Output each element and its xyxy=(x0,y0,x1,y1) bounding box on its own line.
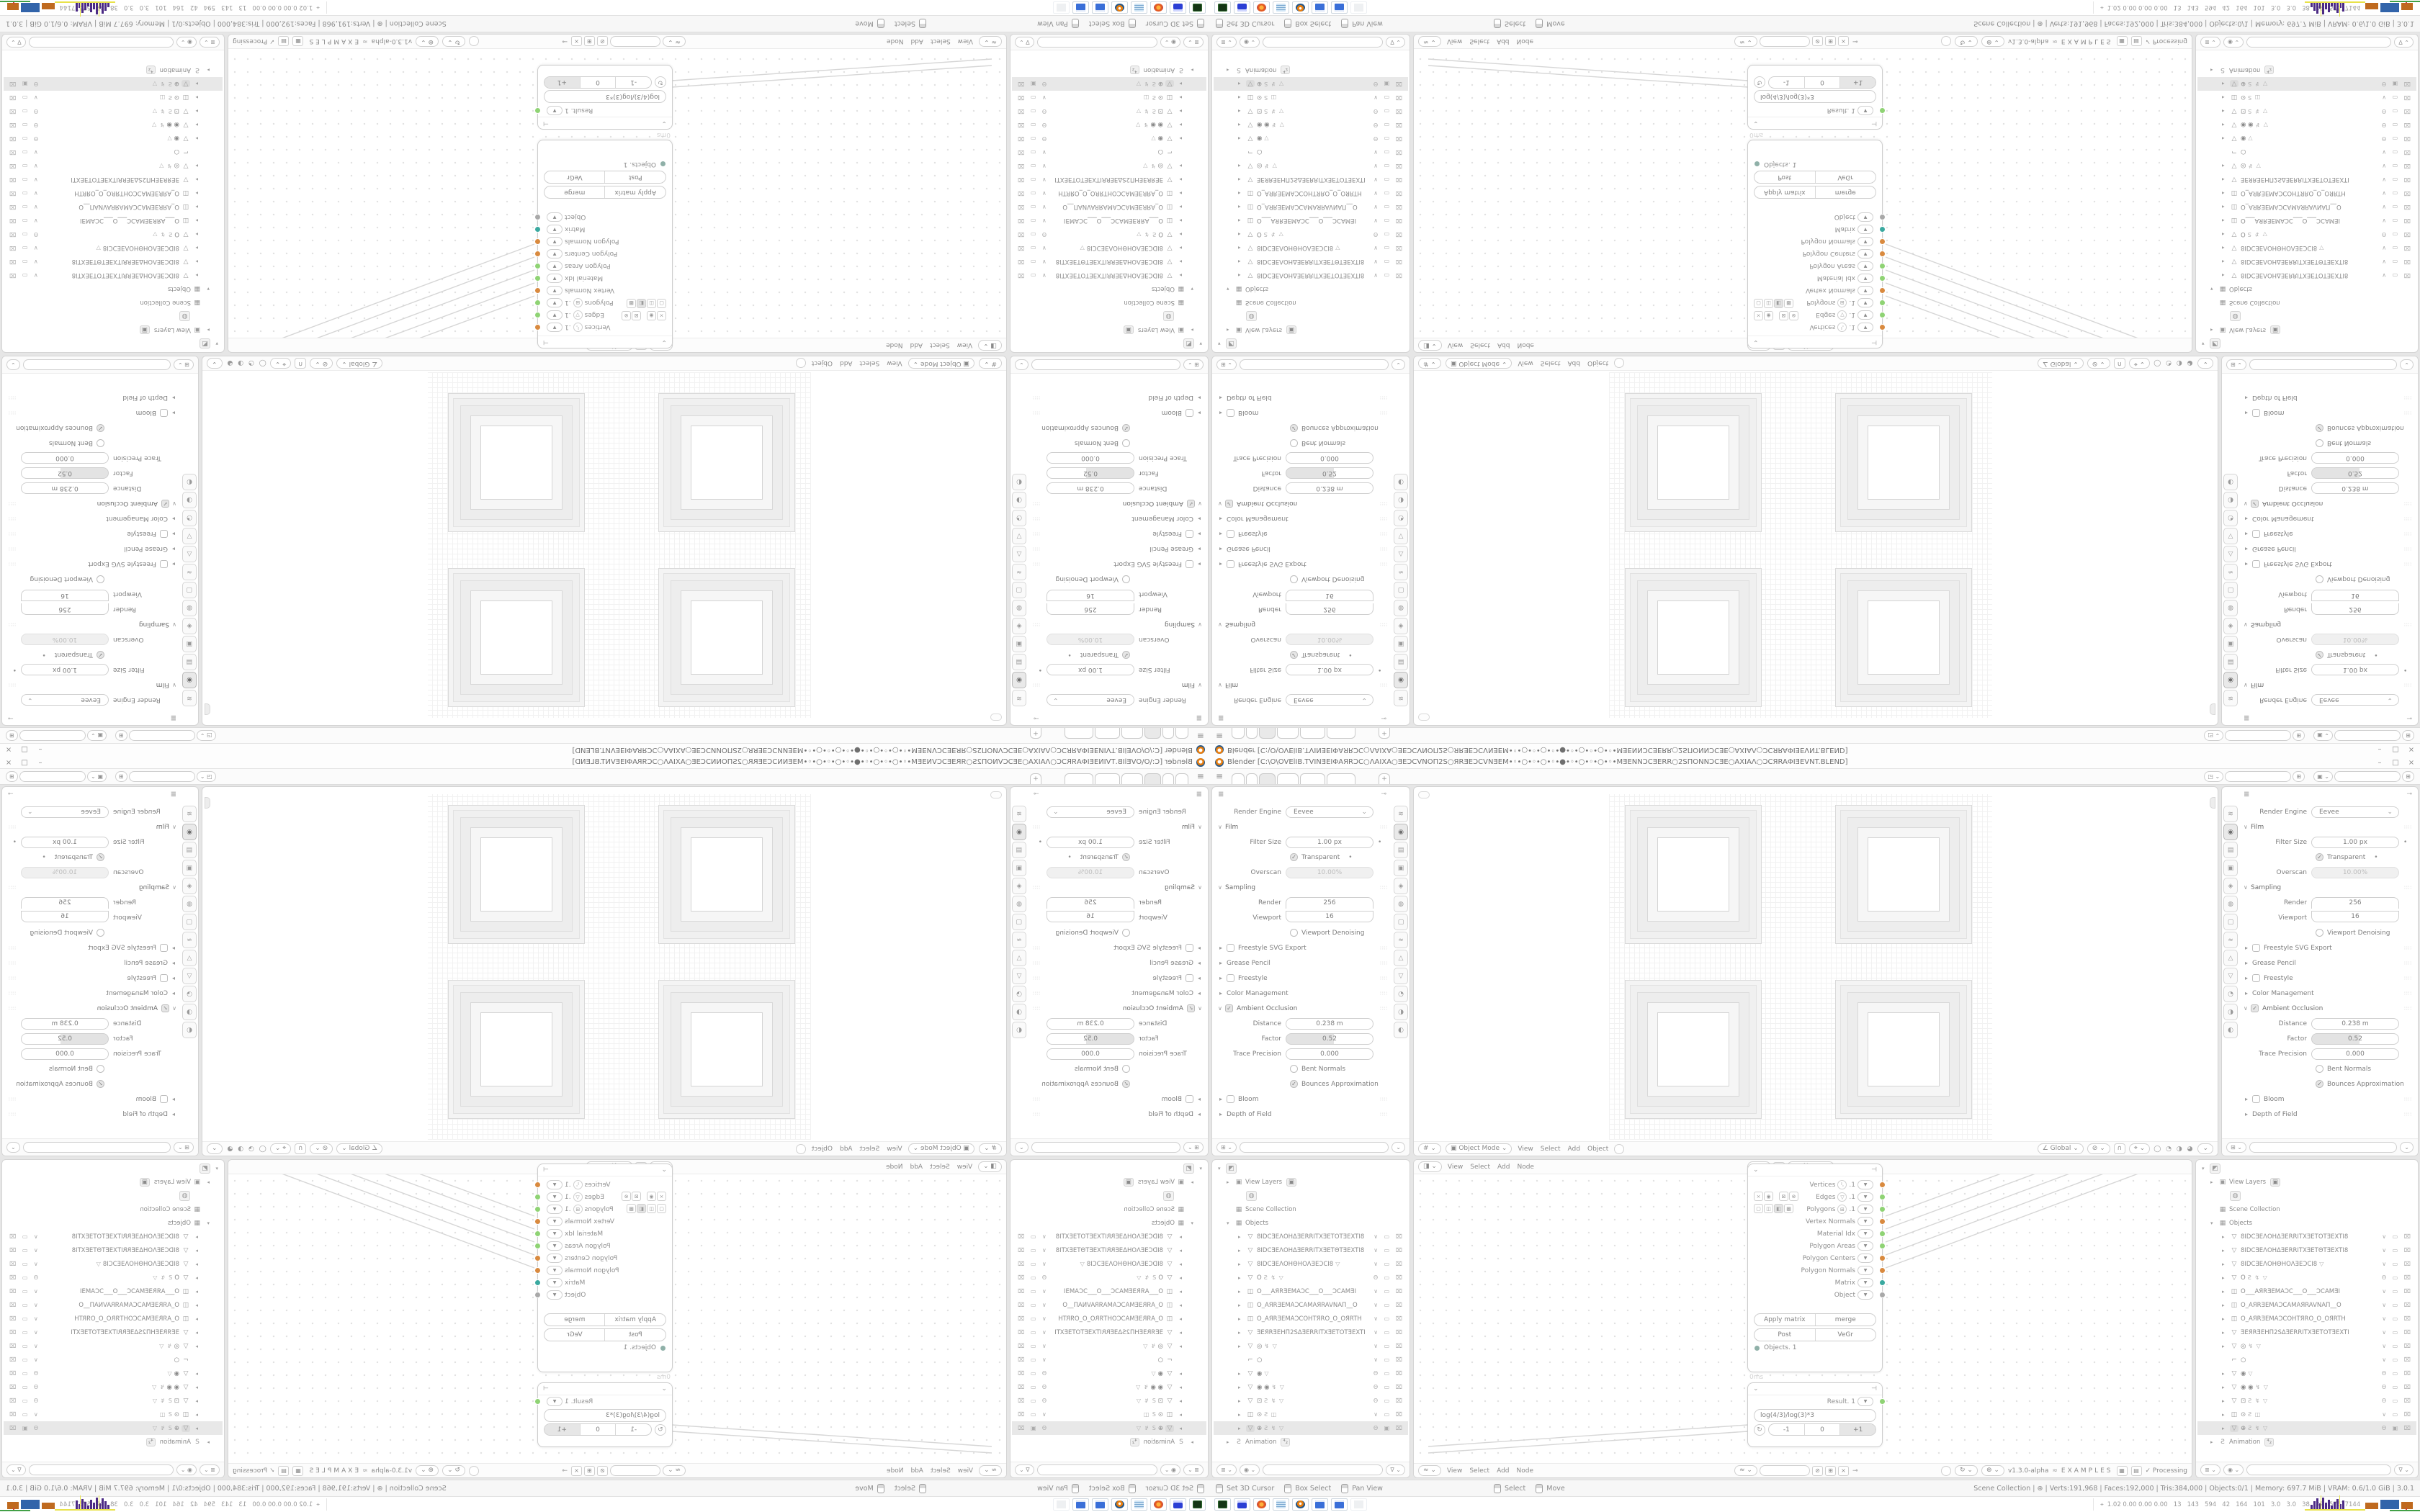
outliner-visibility-toggles[interactable]: Θ ▭ ⌧ xyxy=(1373,1384,1408,1390)
node-header-item[interactable]: ≈ ⌄ xyxy=(1418,1465,1441,1476)
node-tree-item[interactable]: ⊸ xyxy=(561,38,570,45)
outliner-item-name[interactable]: ○ xyxy=(174,149,179,156)
property-value[interactable]: 0.238 m xyxy=(1286,1018,1373,1030)
section-caret-icon[interactable]: ∨ xyxy=(2244,884,2251,891)
expand-caret-icon[interactable]: ▸ xyxy=(1176,1316,1182,1322)
outliner-row[interactable]: ▸ ◫ O___AЯRƎEMAƆC___O___ƆCAMƎI ∨ ▭ ⌧ xyxy=(2197,1284,2416,1298)
close-button[interactable]: × xyxy=(4,759,13,767)
outliner-row[interactable]: ▸ ▽ 8IDCƎEΛOHΔƎERRITXƎETOTƎEXTI8 ∨ ▭ ⌧ xyxy=(1214,1230,1408,1243)
property-row[interactable]: ∨ Ambient Occlusion ∷∷ xyxy=(2244,1001,2412,1016)
viewport-header-item[interactable]: ▣ Object Mode ⌄ xyxy=(1446,1143,1512,1154)
socket-dot[interactable] xyxy=(1879,1194,1886,1200)
property-value[interactable]: 256 xyxy=(2311,604,2399,616)
node-toggle-icon[interactable]: ◉ xyxy=(647,1192,656,1201)
node-header-item[interactable]: Add xyxy=(909,1467,924,1475)
properties-tab-icon[interactable]: ▽ xyxy=(1012,528,1026,544)
expand-caret-icon[interactable]: ▸ xyxy=(192,1261,198,1267)
outliner-visibility-toggles[interactable]: Θ ▭ ⌧ xyxy=(1373,122,1408,128)
expand-caret-icon[interactable]: ▸ xyxy=(2210,1439,2216,1445)
outliner-item-name[interactable]: ⊙ xyxy=(2241,94,2246,102)
section-caret-icon[interactable]: ∨ xyxy=(169,621,176,628)
sverchok-header-item[interactable]: ✓ Processing xyxy=(233,1467,274,1475)
outliner-item-name[interactable]: Scene Collection xyxy=(140,1206,191,1213)
node-output-socket[interactable]: Polygon Areas ▼ xyxy=(538,260,672,272)
property-row[interactable]: Distance 0.238 m xyxy=(1032,481,1202,496)
window-title-bar[interactable]: Blender [C:\O\OVElIB.TVINƎEIΦAЯRƆC○ΛAIXA… xyxy=(0,756,1210,769)
expand-caret-icon[interactable]: ▸ xyxy=(192,122,198,128)
section-caret-icon[interactable]: ▸ xyxy=(2245,1111,2252,1117)
outliner-row[interactable]: ▸ ◫ O_AЯRƎEMAƆCAMAЯRAVNAΠ__O ∨ ▭ ⌧ xyxy=(2197,1298,2416,1312)
node-header-item[interactable]: Select xyxy=(1468,1467,1491,1475)
property-row[interactable]: Viewport 16 xyxy=(1032,587,1202,602)
sverchok-header-item[interactable] xyxy=(1941,1466,1951,1476)
outliner-row[interactable]: ▸ ◫ ⊙ Ƨ ◫ ∨ ▭ ⌧ xyxy=(2197,91,2416,104)
view-layer-selector[interactable]: ▣ ⌄ ⊞ xyxy=(2313,771,2414,782)
viewport-header-item[interactable]: View xyxy=(1516,360,1534,367)
outliner-row[interactable]: ▸ ▽ ◉ ◉ ↯ ▽ Θ ▭ ⌧ xyxy=(4,1380,223,1394)
step-button[interactable]: -1 xyxy=(1769,1424,1804,1435)
socket-dropdown[interactable]: ▼ xyxy=(547,274,563,283)
outliner-row[interactable]: ▸ ▽ ⊡ Ƨ ↯ ▽ Θ ▭ ⌧ xyxy=(1214,104,1408,118)
node-header[interactable]: ⌄ ⊣ xyxy=(1748,1383,1882,1395)
node-header-item[interactable]: Node xyxy=(885,1467,905,1475)
node-output-socket[interactable]: Vertex Normals ▼ xyxy=(1748,284,1882,297)
node-header-item[interactable]: Select xyxy=(1469,342,1492,349)
property-value[interactable]: 1.00 px xyxy=(21,665,109,676)
section-caret-icon[interactable]: ▸ xyxy=(1193,395,1201,401)
socket-dropdown[interactable]: ▼ xyxy=(547,1180,563,1189)
sverchok-node-editor[interactable]: ◨ ⌄ViewSelectAddNode ◨ ⌄1New⊸ xyxy=(1413,34,2192,353)
property-value[interactable]: 0.52 xyxy=(21,468,109,480)
node-output-socket[interactable]: Object ▼ xyxy=(1748,211,1882,223)
outliner-row[interactable]: ◍ xyxy=(1214,310,1408,323)
property-row[interactable]: Viewport 16 xyxy=(8,910,176,925)
section-caret-icon[interactable]: ∨ xyxy=(1195,682,1202,688)
outliner-visibility-toggles[interactable]: ∨ ▭ ⌧ xyxy=(1373,176,1408,183)
checkbox[interactable] xyxy=(1290,439,1298,447)
outliner-row[interactable]: ▸ ▽ 8IDCƎEΛOHΔƎERRITXƎETΘTƎEXTI8 ∨ ▭ ⌧ xyxy=(4,255,223,269)
sverchok-header-item[interactable]: EXAMPLES xyxy=(307,38,359,45)
outliner-item-name[interactable]: ƎEЯRƎEHΠ2SΔƎERRITXƎETOTƎEXTI xyxy=(1257,176,1365,184)
node-toggle-icon[interactable]: ⊗ xyxy=(622,1192,631,1201)
display-mode-icon[interactable]: ◫ xyxy=(647,1204,656,1213)
property-row[interactable]: Overscan 10.00% xyxy=(1032,865,1202,880)
outliner-visibility-toggles[interactable]: ∨ ▭ ⌧ xyxy=(1373,1233,1408,1240)
expand-caret-icon[interactable]: ▸ xyxy=(204,68,210,73)
socket-dot[interactable] xyxy=(534,1292,541,1298)
step-button[interactable]: +1 xyxy=(544,77,581,88)
expand-caret-icon[interactable]: ▸ xyxy=(192,1398,198,1404)
outliner-row[interactable]: ▸ ◫ ⊙ Ƨ ◫ ∨ ▭ ⌧ xyxy=(4,91,223,104)
pin-icon[interactable]: ⊸ xyxy=(1034,791,1039,798)
step-button[interactable]: -1 xyxy=(616,77,651,88)
outliner-row[interactable]: ▸ ▽ 8IDCƎEΛOHΘHOΛƎEƆCI8 ▽ ∨ ▭ ⌧ xyxy=(4,1257,223,1271)
expand-caret-icon[interactable]: ▸ xyxy=(1176,1426,1182,1431)
outliner-visibility-toggles[interactable]: Θ ▭ ⌧ xyxy=(2382,231,2416,238)
viewport-header-item[interactable]: ∠ Global ⌄ xyxy=(2038,358,2084,369)
expand-caret-icon[interactable]: ▸ xyxy=(2222,81,2228,87)
section-caret-icon[interactable]: ▸ xyxy=(168,546,175,552)
outliner-visibility-toggles[interactable]: ∨ ▭ ⌧ xyxy=(2382,1261,2416,1267)
outliner-visibility-toggles[interactable]: ∨ ▭ ⌧ xyxy=(4,149,38,156)
node-button[interactable]: VeGr xyxy=(544,171,606,183)
properties-options-icon[interactable]: ⌄ xyxy=(1391,1142,1405,1153)
expand-caret-icon[interactable]: ▸ xyxy=(2222,1234,2228,1240)
node-header-item[interactable]: Select xyxy=(929,1467,952,1475)
scene-selector[interactable]: ◳ ⌄ ⊞ xyxy=(115,730,216,741)
section-caret-icon[interactable]: ▸ xyxy=(1193,990,1201,996)
outliner-row[interactable]: ▸ ▽ ⊡ Ƨ ↯ ▽ Θ ▭ ⌧ xyxy=(4,1394,223,1408)
property-row[interactable]: Render 256 xyxy=(2244,895,2412,910)
section-caret-icon[interactable]: ▸ xyxy=(1219,516,1227,522)
outliner-item-name[interactable]: View Layers xyxy=(154,1179,191,1186)
viewport-header-item[interactable]: Object xyxy=(810,1146,834,1153)
expand-caret-icon[interactable]: ▸ xyxy=(1176,246,1182,251)
property-row[interactable]: Bounces Approximation xyxy=(1218,1076,1388,1092)
outliner-item-name[interactable]: ◎ xyxy=(1257,1343,1262,1350)
view-layer-selector[interactable]: ▣ ⌄ ⊞ xyxy=(6,771,107,782)
node-output-socket[interactable]: Result. 1 ▼ xyxy=(1748,1395,1882,1408)
property-row[interactable]: Overscan 10.00% xyxy=(1218,632,1388,647)
properties-tab-icon[interactable]: ≋ xyxy=(1012,806,1026,822)
outliner-item-name[interactable]: O_AЯRƎEMAƆCAMAЯRAVNAΠ__O xyxy=(1062,204,1163,211)
properties-editor-icon[interactable]: ≣ xyxy=(2244,791,2249,798)
property-row[interactable]: ▸ Depth of Field ∷∷ xyxy=(1218,390,1388,405)
outliner-row[interactable]: ▸ Ƨ Animation ⁴₂ xyxy=(1012,63,1206,77)
property-row[interactable]: ∨ Film ∷∷ xyxy=(1218,678,1388,693)
outliner-row[interactable]: ◍ xyxy=(1012,1189,1206,1202)
node-input-socket[interactable]: Objects. 1 xyxy=(1748,161,1882,171)
property-row[interactable]: Viewport 16 xyxy=(1218,910,1388,925)
outliner-item-name[interactable]: O___AЯRƎEMAƆC___O___ƆCAMƎI xyxy=(80,217,179,225)
property-row[interactable]: ▸ Grease Pencil ∷∷ xyxy=(1032,541,1202,557)
node-header-item[interactable]: Add xyxy=(1495,1467,1510,1475)
properties-search-input[interactable] xyxy=(2249,1142,2397,1153)
outliner-row[interactable]: ▾ ◩ xyxy=(1214,1161,1408,1175)
property-row[interactable]: Overscan 10.00% xyxy=(8,632,176,647)
property-row[interactable]: ▸ Depth of Field ∷∷ xyxy=(1032,390,1202,405)
properties-tab-icon[interactable]: ◉ xyxy=(1012,672,1026,688)
outliner-item-name[interactable]: O_AЯRƎEMAƆCOHTЯRO_O_OЯRTH xyxy=(1058,190,1163,197)
outliner-mode-dropdown[interactable]: ≣ ⌄ xyxy=(2200,37,2220,48)
property-row[interactable]: ▸ Freestyle SVG Export ∷∷ xyxy=(1032,557,1202,572)
property-row[interactable]: Filter Size 1.00 px • xyxy=(2244,834,2412,850)
property-row[interactable]: ▸ Grease Pencil ∷∷ xyxy=(1218,955,1388,971)
sverchok-header-item[interactable]: v1.3.0-alpha xyxy=(2008,1467,2048,1475)
node-button[interactable]: Post xyxy=(1754,1329,1815,1341)
outliner-filter-icon[interactable]: ∇ ⌄ xyxy=(1386,37,1405,48)
notepad-app-icon[interactable] xyxy=(1273,1,1289,14)
outliner-item-name[interactable]: O_AЯRƎEMAƆCOHTЯRO_O_OЯRTH xyxy=(1257,1315,1362,1323)
sverchok-header-item[interactable]: ▦ xyxy=(2117,37,2128,47)
node-tree-item[interactable] xyxy=(610,1465,660,1476)
menu-hamburger-icon[interactable]: ≡ xyxy=(1216,771,1223,781)
outliner-visibility-toggles[interactable]: ∨ ▭ ⌧ xyxy=(2382,1343,2416,1349)
socket-dropdown[interactable]: ▼ xyxy=(1857,212,1873,222)
expand-caret-icon[interactable]: ▸ xyxy=(1176,109,1182,114)
outliner-item-name[interactable]: View Layers xyxy=(1245,327,1282,334)
property-row[interactable]: ∨ Film ∷∷ xyxy=(2244,678,2412,693)
property-row[interactable]: Distance 0.238 m xyxy=(8,481,176,496)
section-caret-icon[interactable]: ▸ xyxy=(1219,561,1227,567)
section-caret-icon[interactable]: ∨ xyxy=(2244,682,2251,688)
outliner-item-name[interactable]: Animation xyxy=(1245,67,1276,74)
viewport-header-item[interactable]: ⊘ ⌄ xyxy=(2087,1143,2110,1154)
property-row[interactable]: ∨ Film ∷∷ xyxy=(1218,819,1388,834)
display-mode-icon[interactable]: ▢ xyxy=(657,299,666,308)
outliner-row[interactable]: ▸ Ƨ Animation ⁴₂ xyxy=(1214,63,1408,77)
property-row[interactable]: Trace Precision 0.000 xyxy=(1218,1046,1388,1061)
socket-dropdown[interactable]: ▼ xyxy=(547,298,563,307)
node-toggle-icon[interactable]: × xyxy=(1754,311,1763,320)
checkbox[interactable] xyxy=(1290,651,1298,659)
properties-options-icon[interactable]: ⌄ xyxy=(2400,359,2414,370)
outliner-item-name[interactable]: O xyxy=(1158,1274,1163,1282)
outliner-visibility-toggles[interactable]: Θ ▭ ⌧ xyxy=(4,1384,38,1390)
outliner-row[interactable]: ▸ ▽ ◉ ▽ Θ ▭ ⌧ xyxy=(4,132,223,145)
outliner-row[interactable]: ◍ xyxy=(2197,310,2416,323)
node-toggle-icon[interactable]: ⊠ xyxy=(632,1192,641,1201)
checkbox[interactable] xyxy=(2316,929,2323,937)
property-row[interactable]: Overscan 10.00% xyxy=(8,865,176,880)
outliner-visibility-toggles[interactable]: ∨ ▭ ⌧ xyxy=(2382,176,2416,183)
firefox-app-icon[interactable] xyxy=(1253,1,1270,14)
node-output-socket[interactable]: Polygon Centers ▼ xyxy=(538,1252,672,1264)
expand-caret-icon[interactable]: ▸ xyxy=(1238,204,1244,210)
socket-dot[interactable] xyxy=(1879,1243,1886,1249)
socket-dropdown[interactable]: ▼ xyxy=(1857,237,1873,246)
expand-caret-icon[interactable]: ▸ xyxy=(2222,204,2228,210)
socket-dot[interactable] xyxy=(534,238,541,245)
workspace-tab[interactable] xyxy=(1277,773,1299,784)
section-caret-icon[interactable]: ▸ xyxy=(168,516,175,522)
outliner-row[interactable]: ▸ ▽ ⊡ Ƨ ↯ ▽ Θ ▭ ⌧ xyxy=(1012,104,1206,118)
formula-node[interactable]: ⌄ ⊣ Result. 1 ▼ log(4/3)/log(3)*3 ↻ -10+… xyxy=(1747,65,1883,130)
node-tree-item[interactable]: ⊸ xyxy=(561,1467,570,1475)
outliner-visibility-toggles[interactable]: ∨ ▭ ⌧ xyxy=(1373,94,1408,101)
properties-filter-icon[interactable]: ⊞ ⌄ xyxy=(2226,1142,2246,1153)
properties-options-icon[interactable]: ⌄ xyxy=(2400,1142,2414,1153)
section-caret-icon[interactable]: ▸ xyxy=(1193,960,1201,966)
outliner-visibility-toggles[interactable]: ∨ ▭ ⌧ xyxy=(4,1247,38,1254)
property-row[interactable]: ▸ Freestyle ∷∷ xyxy=(8,526,176,541)
outliner-row[interactable]: ▸ ◫ O___AЯRƎEMAƆC___O___ƆCAMƎI ∨ ▭ ⌧ xyxy=(4,214,223,228)
expand-caret-icon[interactable]: ▸ xyxy=(1227,328,1232,333)
property-row[interactable]: ▸ Color Management ∷∷ xyxy=(8,986,176,1001)
checkbox[interactable] xyxy=(2252,1095,2260,1103)
property-row[interactable]: Filter Size 1.00 px • xyxy=(1032,662,1202,678)
outliner-row[interactable]: ▦ Scene Collection xyxy=(2197,1202,2416,1216)
property-value[interactable]: Eevee xyxy=(2311,806,2399,818)
expand-caret-icon[interactable]: ▾ xyxy=(1196,1166,1202,1171)
outliner-visibility-toggles[interactable]: ∨ ▭ ⌧ xyxy=(4,163,38,169)
socket-dropdown[interactable]: ▼ xyxy=(547,1229,563,1238)
properties-tab-icon[interactable]: ▽ xyxy=(2223,968,2238,984)
socket-dot[interactable] xyxy=(534,1206,541,1212)
property-value[interactable]: 0.000 xyxy=(1286,453,1373,464)
node-toggle-icon[interactable]: ◉ xyxy=(1764,1192,1773,1201)
property-row[interactable]: Bent Normals xyxy=(1218,436,1388,451)
socket-dot[interactable] xyxy=(534,1255,541,1261)
checkbox[interactable] xyxy=(1290,1080,1298,1088)
property-row[interactable]: Overscan 10.00% xyxy=(2244,632,2412,647)
property-row[interactable]: ∨ Film ∷∷ xyxy=(1032,678,1202,693)
viewport-header-item[interactable]: ⌄ xyxy=(2197,358,2213,369)
property-row[interactable]: Bent Normals xyxy=(8,436,176,451)
checkbox[interactable] xyxy=(2251,1004,2259,1012)
socket-dropdown[interactable]: ▼ xyxy=(547,225,563,234)
sverchok-header-item[interactable]: ≈ xyxy=(362,38,368,45)
node-header-item[interactable]: Select xyxy=(929,38,952,45)
checkbox[interactable] xyxy=(1290,853,1298,861)
property-value[interactable]: 0.000 xyxy=(21,453,109,464)
outliner-row[interactable]: ▸ ◫ O_AЯRƎEMAƆCAMAЯRAVNAΠ__O ∨ ▭ ⌧ xyxy=(1214,200,1408,214)
properties-tab-icon[interactable]: ◈ xyxy=(182,878,197,894)
socket-dropdown[interactable]: ▼ xyxy=(547,261,563,271)
properties-tab-icon[interactable]: ◍ xyxy=(1012,600,1026,616)
outliner-visibility-toggles[interactable]: Θ ▣ ⌧ xyxy=(2382,81,2416,87)
node-tree-item[interactable]: ⊞ xyxy=(1825,37,1836,47)
outliner-row[interactable]: ▸ ◫ O_AЯRƎEMAƆCOHTЯRO_O_OЯRTH ∨ ▭ ⌧ xyxy=(4,1312,223,1326)
property-row[interactable]: Bent Normals xyxy=(1218,1061,1388,1076)
outliner-row[interactable]: ▸ ▽ ◉ ▽ Θ ▭ ⌧ xyxy=(1012,132,1206,145)
property-row[interactable]: ∨ Film ∷∷ xyxy=(1032,819,1202,834)
checkbox[interactable] xyxy=(1122,439,1130,447)
properties-options-icon[interactable]: ⌄ xyxy=(6,1142,20,1153)
outliner-row[interactable]: ▸ ▽ 8IDCƎEΛOHΘHOΛƎEƆCI8 ▽ ∨ ▭ ⌧ xyxy=(2197,241,2416,255)
outliner-item-name[interactable]: ○ xyxy=(1257,1356,1262,1364)
outliner-row[interactable]: ▸ ◫ O_AЯRƎEMAƆCAMAЯRAVNAΠ__O ∨ ▭ ⌧ xyxy=(1214,1298,1408,1312)
outliner-visibility-toggles[interactable]: ∨ ▭ ⌧ xyxy=(1012,1233,1047,1240)
objects-in-node[interactable]: ⌄ ⊣ Vertices ⠣ .1 ▼ xyxy=(1747,1164,1883,1372)
checkbox[interactable] xyxy=(160,560,168,568)
checkbox[interactable] xyxy=(160,1095,168,1103)
socket-dot[interactable] xyxy=(1754,1345,1760,1351)
node-output-socket[interactable]: Polygon Centers ▼ xyxy=(538,248,672,260)
node-toggle-icon[interactable]: × xyxy=(1754,1192,1763,1201)
property-row[interactable]: ▸ Depth of Field ∷∷ xyxy=(2244,1107,2412,1122)
collapse-icon[interactable]: ⌄ xyxy=(661,120,667,127)
socket-dropdown[interactable]: ▼ xyxy=(547,1192,563,1202)
section-caret-icon[interactable]: ▸ xyxy=(1219,395,1227,401)
checkbox[interactable] xyxy=(1227,1095,1234,1103)
properties-tab-icon[interactable]: ▣ xyxy=(2223,860,2238,876)
calculator-app-icon[interactable] xyxy=(1312,1498,1328,1511)
outliner-row[interactable]: ▾ ◩ xyxy=(1012,337,1206,351)
properties-tab-icon[interactable]: ◉ xyxy=(2223,824,2238,840)
property-row[interactable]: ▸ Color Management ∷∷ xyxy=(8,511,176,526)
expand-caret-icon[interactable]: ▾ xyxy=(1227,287,1232,292)
outliner-item-name[interactable]: ◉ ◉ xyxy=(1257,122,1270,129)
expand-caret-icon[interactable]: ▸ xyxy=(192,204,198,210)
property-value[interactable]: 16 xyxy=(21,590,109,601)
outliner-item-name[interactable]: ⊡ xyxy=(174,108,179,115)
expand-caret-icon[interactable]: ▸ xyxy=(192,81,198,87)
properties-tab-icon[interactable]: ▣ xyxy=(182,636,197,652)
property-row[interactable]: ▸ Freestyle SVG Export ∷∷ xyxy=(8,557,176,572)
socket-dot[interactable] xyxy=(1879,287,1886,294)
expand-caret-icon[interactable]: ▸ xyxy=(2222,1398,2228,1404)
formula-node[interactable]: ⌄ ⊣ Result. 1 ▼ log(4/3)/log(3)*3 ↻ -10+… xyxy=(1747,1382,1883,1447)
properties-tab-icon[interactable]: ◈ xyxy=(182,618,197,634)
outliner-item-name[interactable]: ⊕ xyxy=(1158,1425,1163,1432)
section-caret-icon[interactable]: ▸ xyxy=(1219,410,1227,416)
outliner-visibility-toggles[interactable]: ∨ ▭ ⌧ xyxy=(1373,190,1408,197)
outliner-filter-icon[interactable]: ∇ ⌄ xyxy=(1015,37,1034,48)
outliner-row[interactable]: ▸ ▣ View Layers ▣ xyxy=(4,1175,223,1189)
scene-icon[interactable]: ◳ ⌄ xyxy=(197,771,216,782)
socket-dot[interactable] xyxy=(534,251,541,257)
outliner-item-name[interactable]: 8IDCƎEΛOHΔƎERRITXƎETΘTƎEXTI8 xyxy=(1257,258,1364,266)
expand-caret-icon[interactable]: ▾ xyxy=(2210,1220,2216,1226)
outliner-item-name[interactable]: ⊕ xyxy=(2241,1425,2246,1432)
step-button[interactable]: +1 xyxy=(1839,77,1875,88)
section-caret-icon[interactable]: ▸ xyxy=(1219,546,1227,552)
property-row[interactable]: Factor 0.52 xyxy=(1218,1031,1388,1046)
expand-caret-icon[interactable]: ▾ xyxy=(1188,287,1193,292)
properties-tab-icon[interactable]: ◉ xyxy=(1394,672,1408,688)
outliner-row[interactable]: ▸ ▽ O Ƨ ↯ ▽ Θ ▭ ⌧ xyxy=(1214,228,1408,241)
socket-dropdown[interactable]: ▼ xyxy=(547,1241,563,1251)
outliner-visibility-toggles[interactable]: ∨ ▭ ⌧ xyxy=(2382,1356,2416,1363)
property-row[interactable]: ∨ Sampling ∷∷ xyxy=(1032,880,1202,895)
outliner-row[interactable]: ▸ ▽ ⊕ Ƨ ↯ ▽ Θ ▣ ⌧ xyxy=(2197,77,2416,91)
outliner-row[interactable]: ▾ ◩ xyxy=(4,337,223,351)
outliner-visibility-toggles[interactable]: Θ ▣ ⌧ xyxy=(1373,81,1408,87)
expand-caret-icon[interactable]: ▸ xyxy=(204,1439,210,1445)
property-row[interactable]: ∨ Film ∷∷ xyxy=(2244,819,2412,834)
property-value[interactable]: 1.00 px xyxy=(2311,665,2399,676)
checkbox[interactable] xyxy=(1227,530,1234,538)
node-output-socket[interactable]: Polygon Normals ▼ xyxy=(1748,235,1882,248)
expand-caret-icon[interactable]: ▸ xyxy=(1238,1302,1244,1308)
outliner-item-name[interactable]: O xyxy=(1158,231,1163,238)
sverchok-header-item[interactable]: EXAMPLES xyxy=(2061,1467,2113,1475)
property-row[interactable]: Render Engine Eevee xyxy=(8,693,176,708)
socket-dropdown[interactable]: ▼ xyxy=(547,1266,563,1275)
outliner-row[interactable]: ▸ ◫ O_AЯRƎEMAƆCAMAЯRAVNAΠ__O ∨ ▭ ⌧ xyxy=(4,1298,223,1312)
node-tree-item[interactable]: ≈ ⌄ xyxy=(1734,1465,1757,1476)
blender-app-icon[interactable] xyxy=(1111,1498,1128,1511)
expand-caret-icon[interactable]: ▸ xyxy=(1176,259,1182,265)
node-tree-item[interactable] xyxy=(1760,1465,1810,1476)
workspace-tab[interactable] xyxy=(1175,728,1188,739)
viewport-header-item[interactable]: ◯ ◔ ◑ ◕ xyxy=(2154,360,2194,367)
outliner-visibility-toggles[interactable]: ∨ ▭ ⌧ xyxy=(1012,1261,1047,1267)
workspace-tab[interactable] xyxy=(1144,728,1161,739)
workspace-tab[interactable] xyxy=(1277,728,1299,739)
outliner-visibility-toggles[interactable]: Θ ▭ ⌧ xyxy=(1012,1384,1047,1390)
property-row[interactable]: Transparent • xyxy=(8,850,176,865)
outliner-row[interactable]: ▸ Ƨ Animation ⁴₂ xyxy=(2197,1435,2416,1449)
pin-icon[interactable]: ⊸ xyxy=(2406,714,2412,721)
view-layer-selector[interactable]: ▣ ⌄ ⊞ xyxy=(2313,730,2414,741)
node-tree-item[interactable]: ⊸ xyxy=(1851,38,1860,45)
outliner-display-dropdown[interactable]: ◉ ⌄ xyxy=(1240,37,1260,48)
properties-tab-icon[interactable]: ▤ xyxy=(1012,654,1026,670)
outliner-visibility-toggles[interactable]: Θ ▭ ⌧ xyxy=(1012,108,1047,114)
property-value[interactable]: 1.00 px xyxy=(1047,665,1134,676)
expand-caret-icon[interactable]: ▸ xyxy=(1238,191,1244,197)
property-row[interactable]: Transparent • xyxy=(1218,647,1388,662)
outliner-row[interactable]: ▸ ▽ 8IDCƎEΛOHΘHOΛƎEƆCI8 ▽ ∨ ▭ ⌧ xyxy=(4,241,223,255)
section-caret-icon[interactable]: ∨ xyxy=(2244,824,2251,830)
socket-dropdown[interactable]: ▼ xyxy=(1857,323,1873,332)
outliner-visibility-toggles[interactable]: ∨ ▭ ⌧ xyxy=(2382,1329,2416,1336)
node-tree-item[interactable]: ⊘ xyxy=(1812,1466,1823,1476)
section-caret-icon[interactable]: ∨ xyxy=(1218,500,1225,507)
outliner-row[interactable]: ▸ ▽ ◎ ↯ ▽ ∨ ▭ ⌧ xyxy=(1012,159,1206,173)
